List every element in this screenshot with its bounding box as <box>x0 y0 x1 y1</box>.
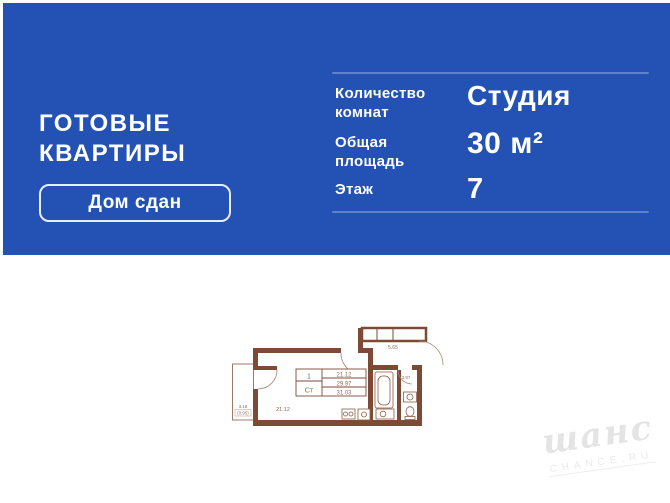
bathtub-icon <box>375 372 393 408</box>
stamp-rooms: 1 <box>307 372 311 381</box>
spec-value-rooms: Студия <box>467 80 571 112</box>
promo-banner: ГОТОВЫЕ КВАРТИРЫ Дом сдан Количество ком… <box>3 3 670 255</box>
watermark-caption: CHANCE.RU <box>547 448 656 477</box>
stove-icon <box>342 409 355 419</box>
floorplan-drawing: 1 Ст 21.12 29.97 31.03 21.12 5.65 3.87 3… <box>225 308 470 443</box>
spec-label-floor: Этаж <box>335 180 453 199</box>
sink-icon <box>404 392 417 402</box>
stamp-area-total: 31.03 <box>336 391 352 397</box>
specs-divider-bottom <box>332 211 649 213</box>
specs-divider-top <box>332 72 649 74</box>
watermark: шанс CHANCE.RU <box>530 409 668 479</box>
spec-label-area: Общая площадь <box>335 133 453 171</box>
spec-value-area: 30 м² <box>467 127 543 161</box>
kitchen-sink-icon <box>358 409 370 420</box>
closet <box>362 328 426 341</box>
balcony-reduced-area-label: (0.95) <box>237 411 249 416</box>
stamp-area-main: 29.97 <box>336 382 352 388</box>
area-stamp: 1 Ст 21.12 29.97 31.03 <box>296 369 366 397</box>
badge-label: Дом сдан <box>88 192 181 214</box>
washing-machine-icon <box>376 409 394 419</box>
stamp-type: Ст <box>305 386 314 395</box>
stamp-living-area: 21.12 <box>336 373 352 379</box>
spec-value-floor: 7 <box>467 173 484 206</box>
hallway-area-label: 5.65 <box>388 345 398 351</box>
banner-title: ГОТОВЫЕ КВАРТИРЫ <box>39 109 186 169</box>
bathroom-area-label: 3.87 <box>402 375 411 380</box>
listing-flyer: ГОТОВЫЕ КВАРТИРЫ Дом сдан Количество ком… <box>0 0 670 503</box>
toilet-icon <box>405 407 415 420</box>
watermark-script: шанс <box>530 409 665 461</box>
living-room-area-label: 21.12 <box>276 407 290 413</box>
balcony-area-label: 3.18 <box>239 404 248 409</box>
house-delivered-badge[interactable]: Дом сдан <box>39 184 231 222</box>
banner-title-line2: КВАРТИРЫ <box>39 139 186 169</box>
banner-title-line1: ГОТОВЫЕ <box>39 109 186 139</box>
spec-label-rooms: Количество комнат <box>335 84 453 122</box>
